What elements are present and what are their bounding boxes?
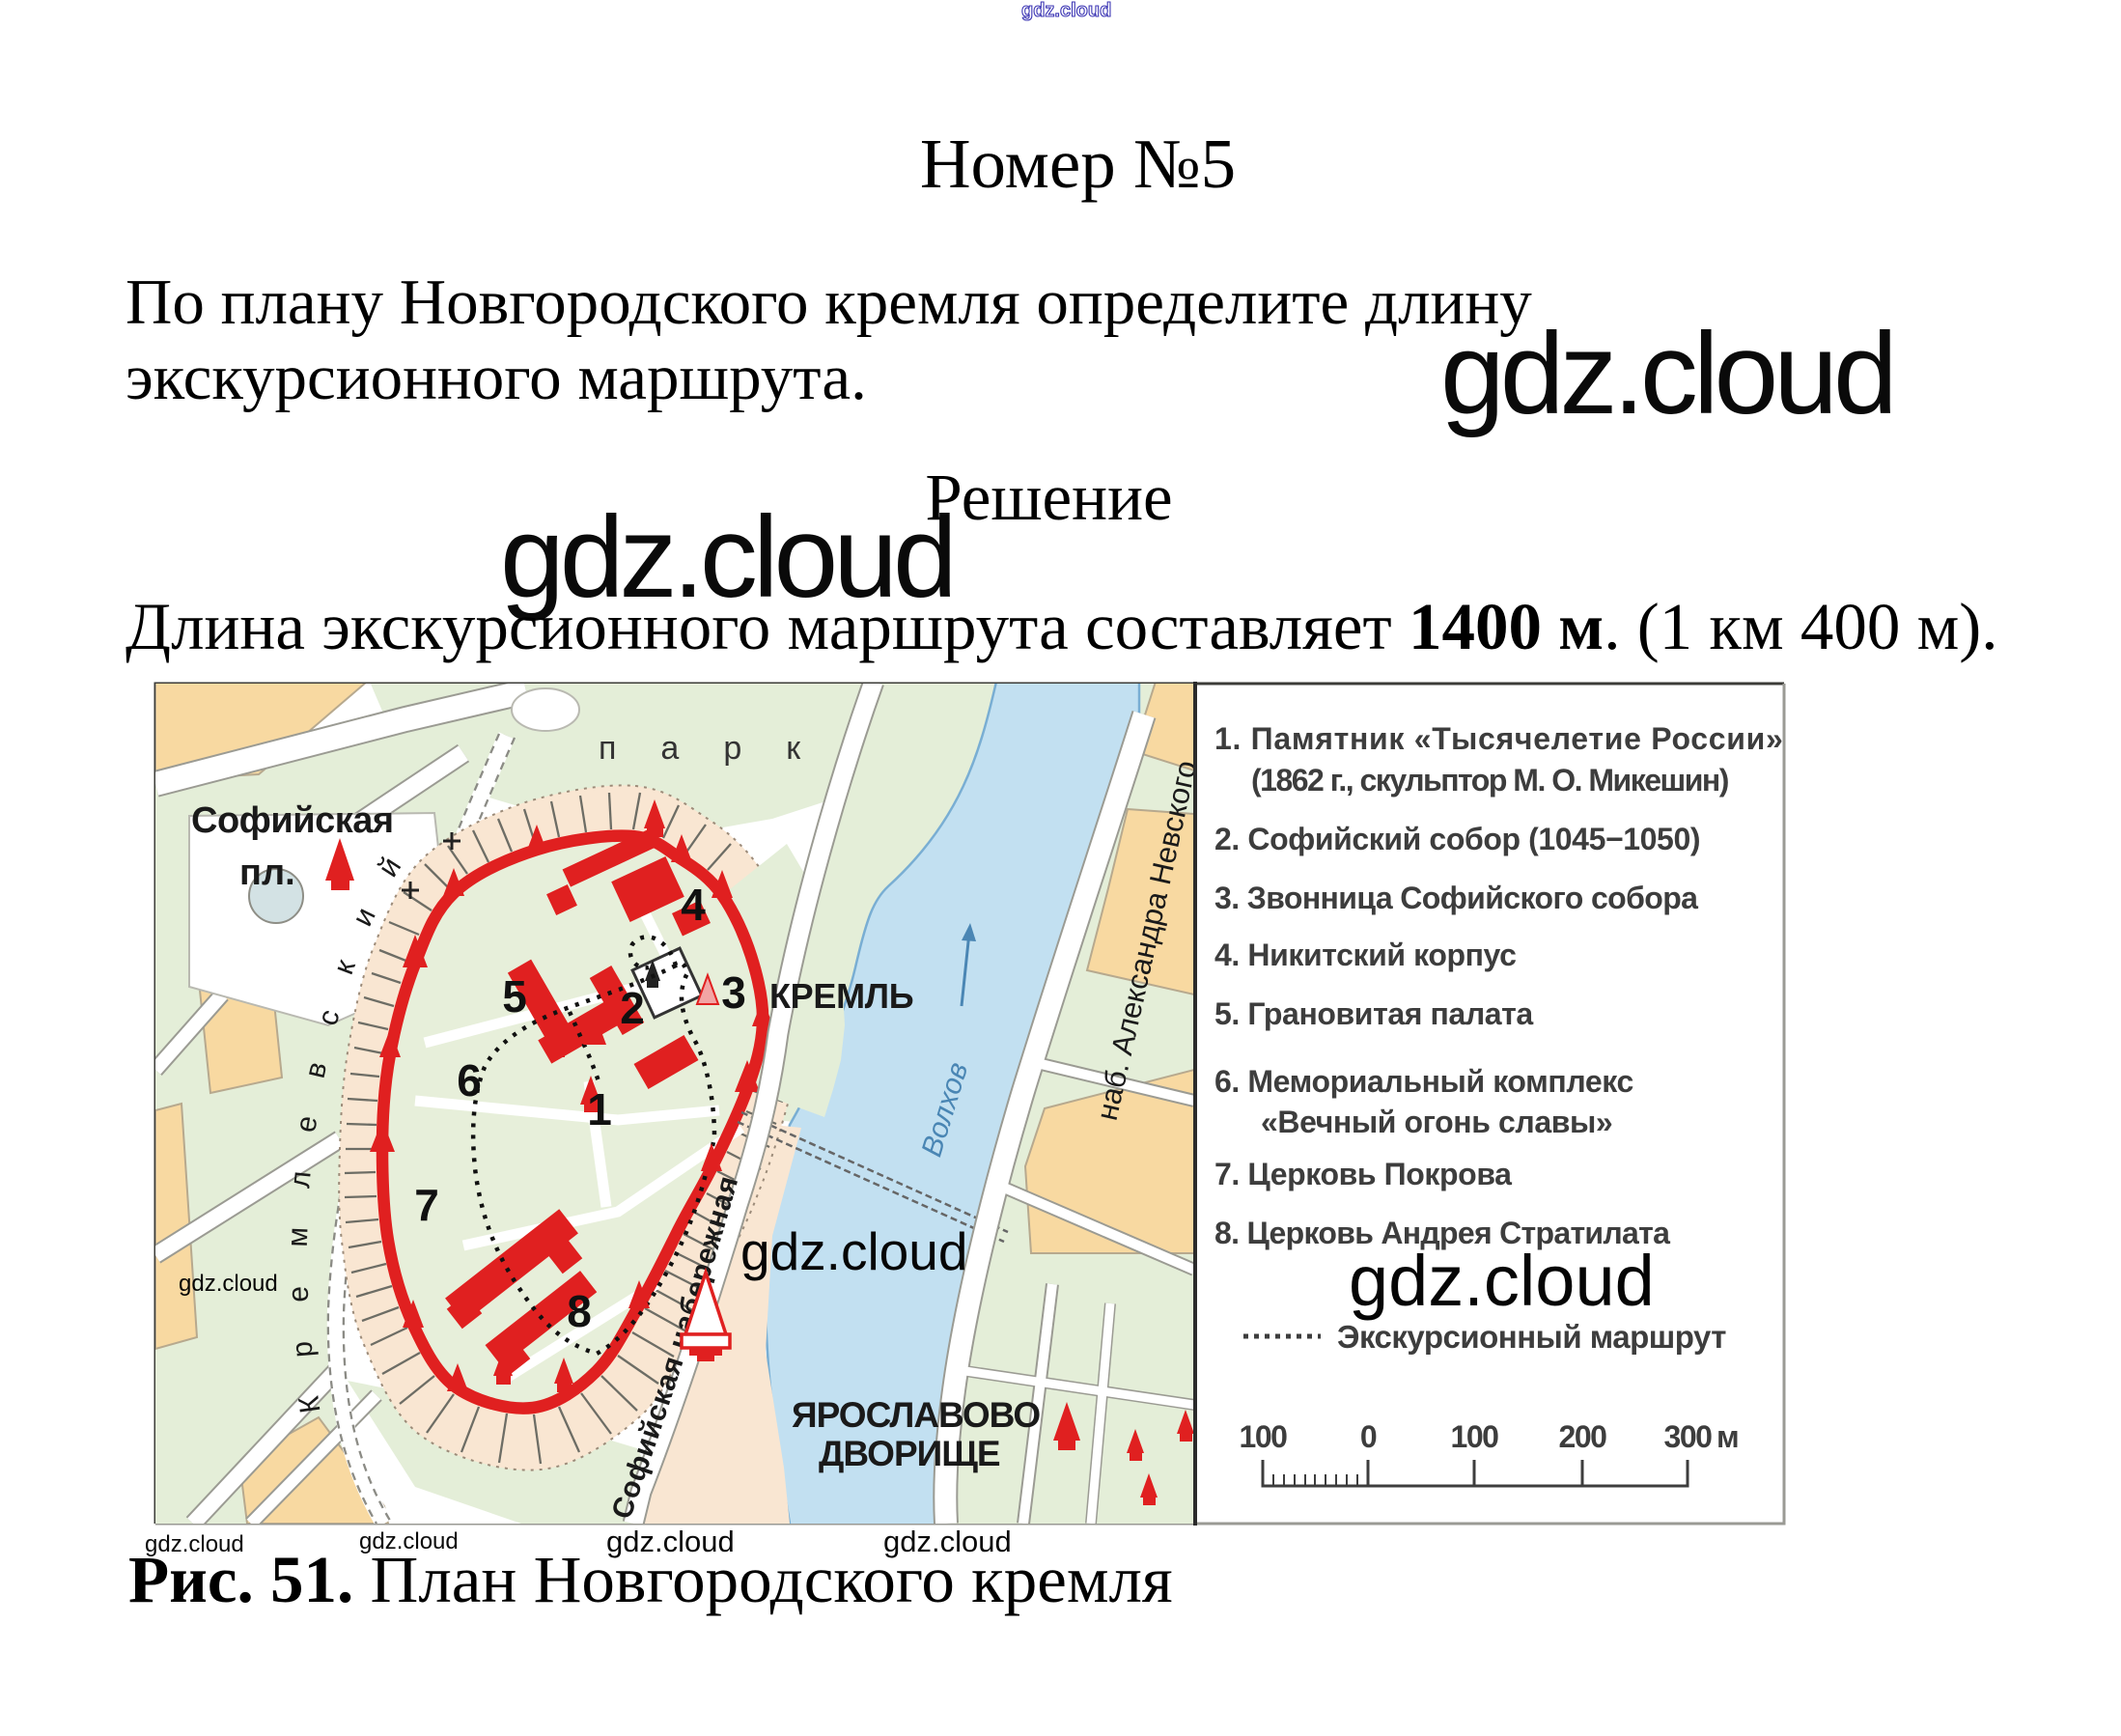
svg-text:2. Софийский собор (1045−1050): 2. Софийский собор (1045−1050)	[1214, 822, 1700, 856]
svg-text:8: 8	[567, 1286, 592, 1336]
svg-text:3: 3	[721, 967, 746, 1018]
svg-text:2: 2	[620, 983, 645, 1033]
svg-text:(1862 г., скульптор М. О. Мике: (1862 г., скульптор М. О. Микешин)	[1251, 763, 1729, 798]
svg-text:gdz.cloud: gdz.cloud	[740, 1221, 967, 1281]
svg-text:5. Грановитая палата: 5. Грановитая палата	[1214, 996, 1533, 1031]
svg-text:7. Церковь Покрова: 7. Церковь Покрова	[1214, 1157, 1512, 1191]
svg-text:пл.: пл.	[239, 853, 295, 893]
svg-text:Софийская: Софийская	[191, 800, 394, 841]
svg-text:100: 100	[1451, 1419, 1499, 1454]
svg-text:парк: парк	[599, 730, 845, 767]
svg-text:7: 7	[414, 1180, 439, 1230]
svg-text:м: м	[1716, 1419, 1738, 1454]
svg-text:1. Памятник «Тысячелетие Росси: 1. Памятник «Тысячелетие России»	[1214, 721, 1784, 756]
svg-text:КРЕМЛЬ: КРЕМЛЬ	[769, 976, 913, 1016]
svg-text:gdz.cloud: gdz.cloud	[179, 1271, 278, 1297]
svg-text:«Вечный огонь славы»: «Вечный огонь славы»	[1261, 1105, 1612, 1139]
svg-text:0: 0	[1360, 1419, 1377, 1454]
svg-text:6. Мемориальный комплекс: 6. Мемориальный комплекс	[1214, 1064, 1633, 1099]
svg-text:5: 5	[502, 971, 527, 1022]
svg-text:4: 4	[681, 880, 706, 930]
svg-text:4. Никитский корпус: 4. Никитский корпус	[1214, 938, 1517, 972]
svg-text:ЯРОСЛАВОВО: ЯРОСЛАВОВО	[792, 1395, 1040, 1435]
svg-text:3. Звонница Софийского собора: 3. Звонница Софийского собора	[1214, 881, 1698, 915]
svg-text:300: 300	[1664, 1419, 1713, 1454]
svg-text:200: 200	[1559, 1419, 1607, 1454]
svg-text:6: 6	[457, 1055, 482, 1106]
svg-text:1: 1	[587, 1084, 612, 1134]
svg-text:ДВОРИЩЕ: ДВОРИЩЕ	[819, 1434, 1000, 1473]
svg-text:100: 100	[1240, 1419, 1288, 1454]
svg-text:gdz.cloud: gdz.cloud	[1349, 1241, 1655, 1321]
svg-text:Экскурсионный маршрут: Экскурсионный маршрут	[1337, 1319, 1726, 1355]
